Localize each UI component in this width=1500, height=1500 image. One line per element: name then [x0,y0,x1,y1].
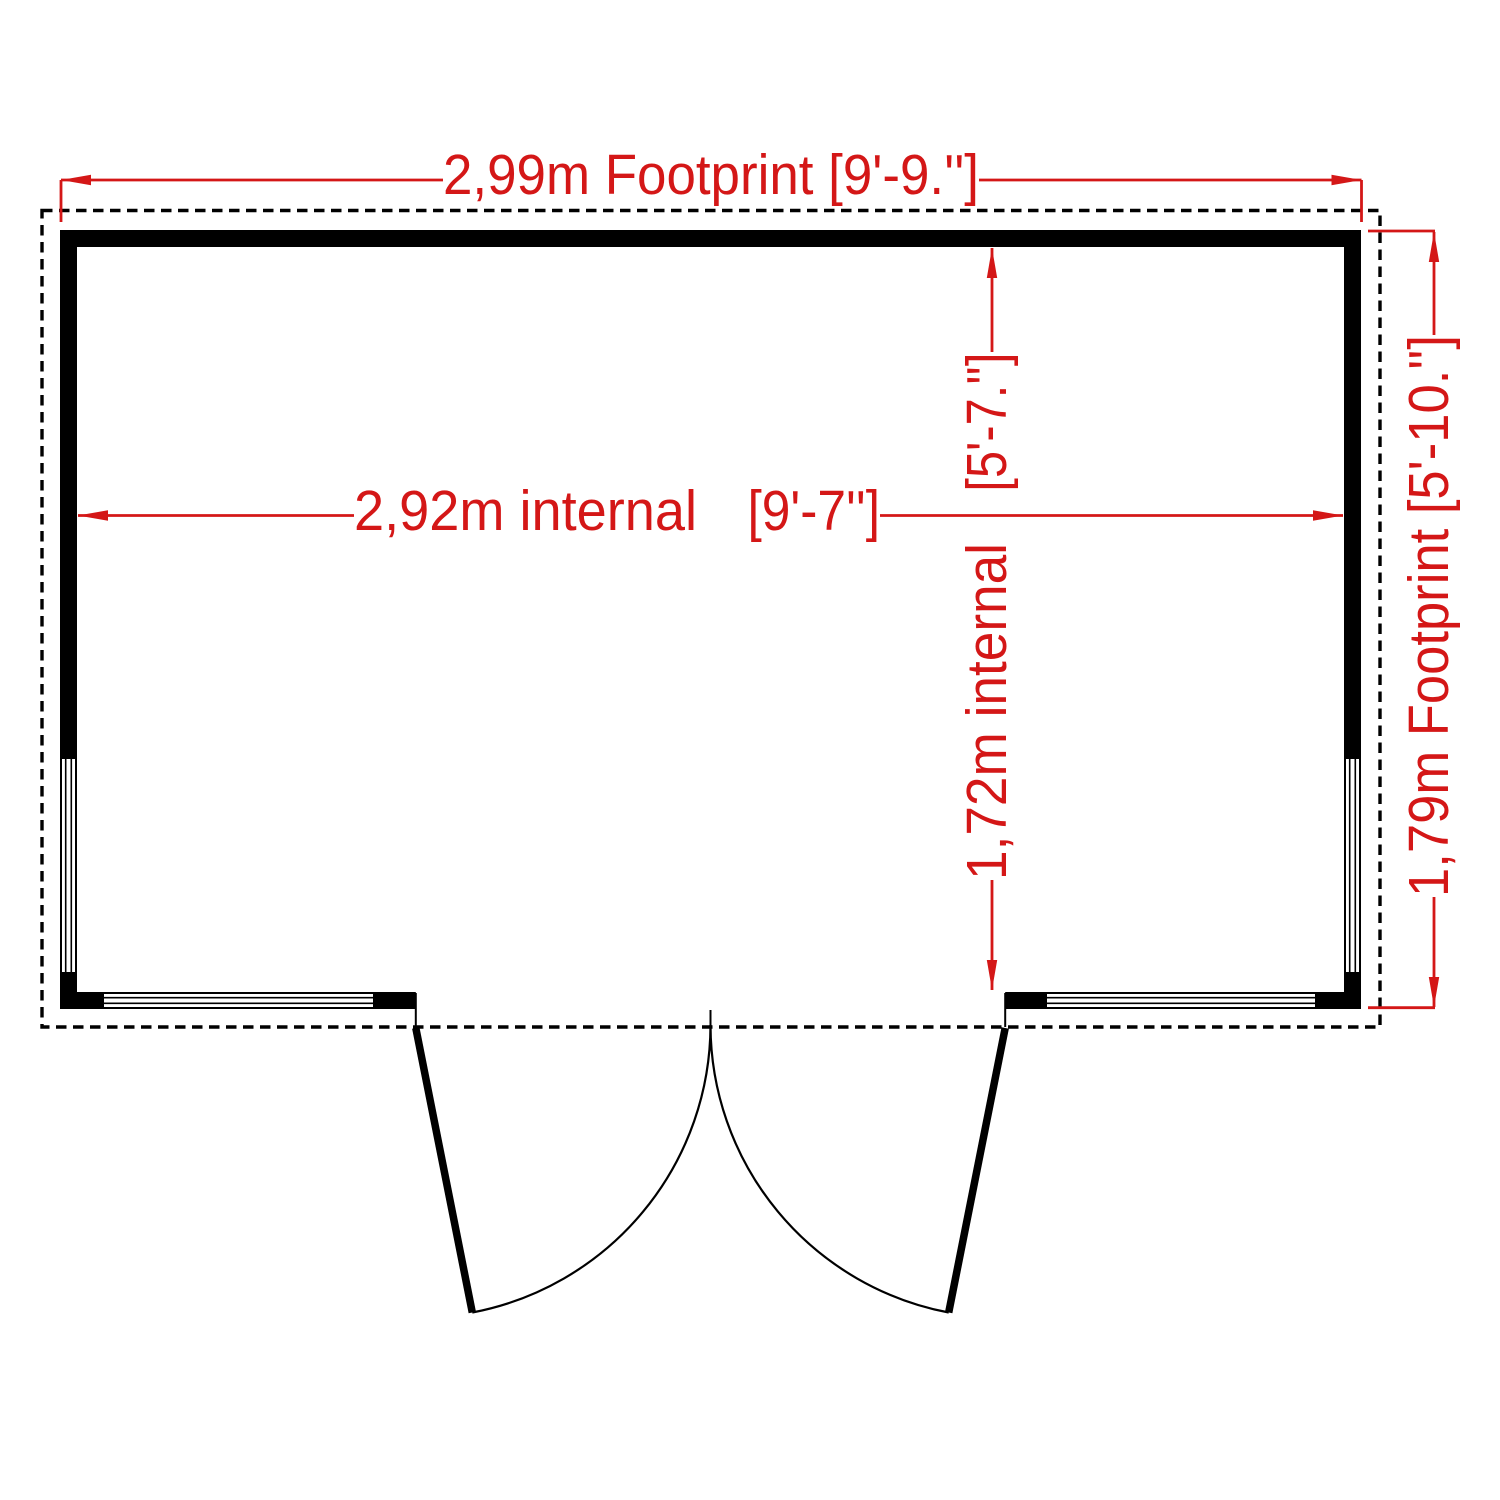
svg-text:2,99m Footprint [9'-9.'']: 2,99m Footprint [9'-9.''] [443,143,979,207]
svg-text:2,92m internal: 2,92m internal [354,479,697,543]
svg-text:[9'-7'']: [9'-7''] [748,479,881,543]
svg-text:[5'-7.'']: [5'-7.''] [955,353,1019,492]
svg-text:1,79m Footprint [5'-10.'']: 1,79m Footprint [5'-10.''] [1397,335,1461,897]
svg-text:1,72m internal: 1,72m internal [955,543,1019,880]
